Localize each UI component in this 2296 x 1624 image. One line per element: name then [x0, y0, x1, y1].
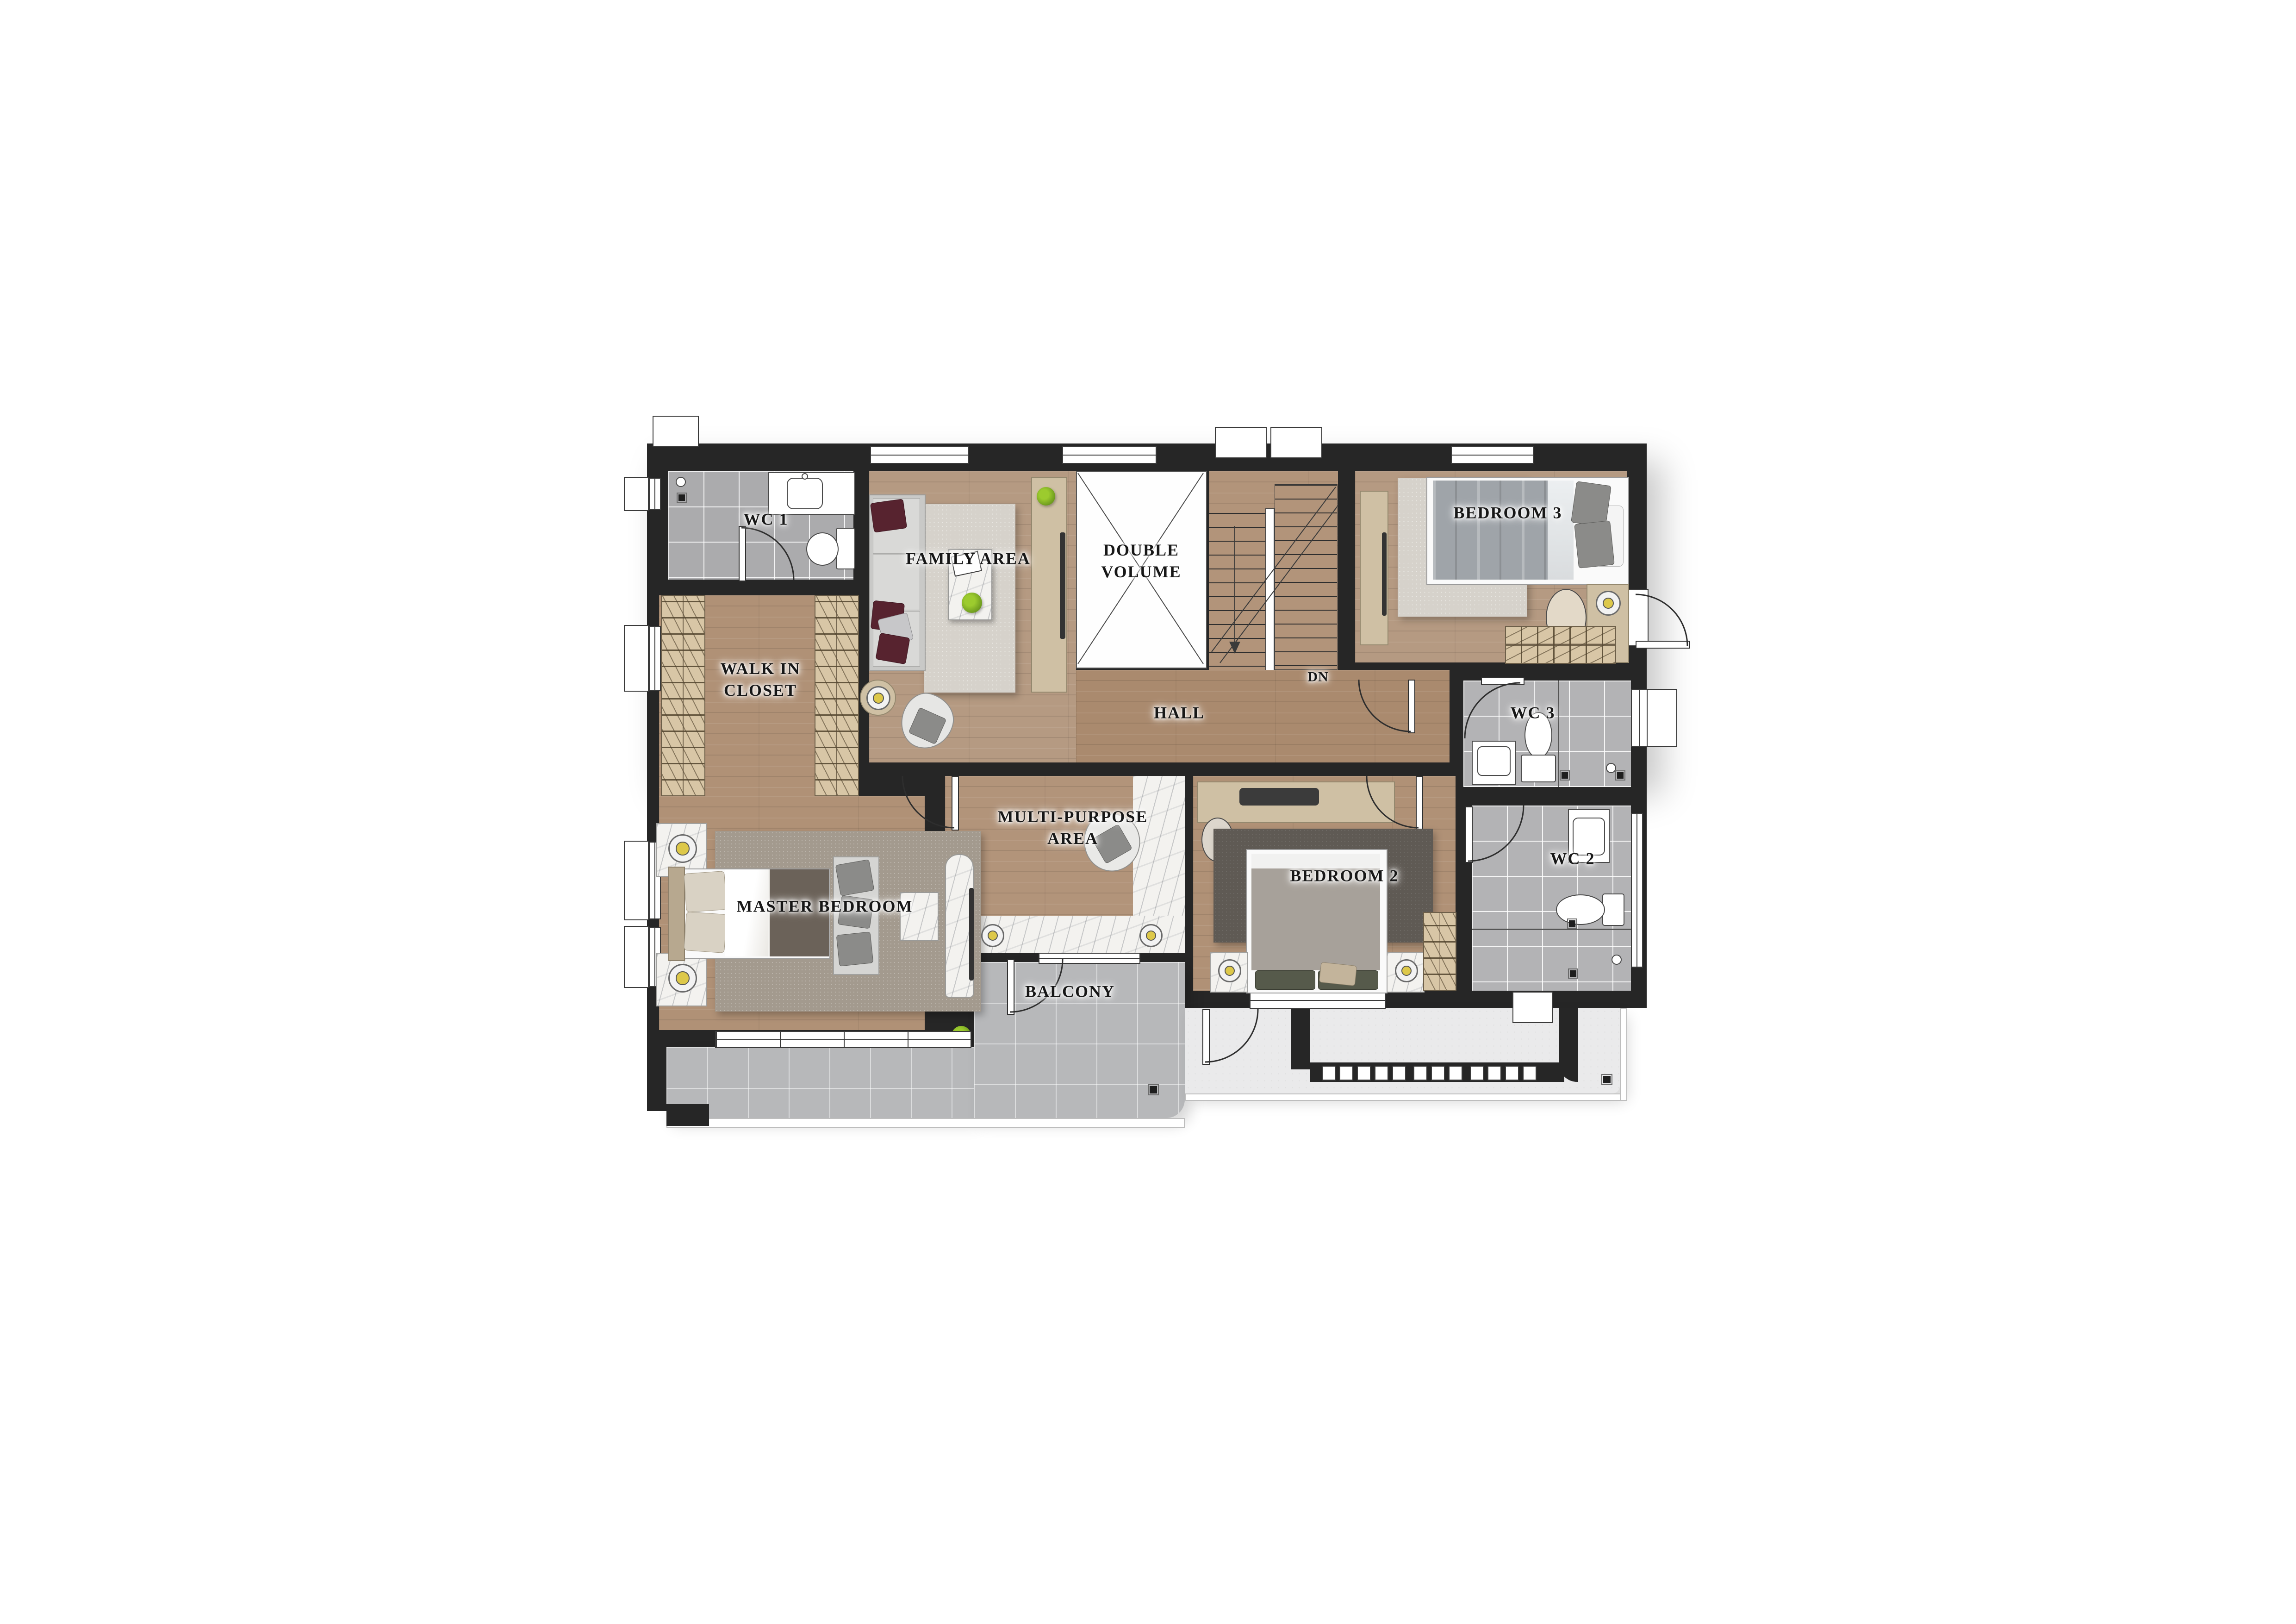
room-hall-floor [1076, 670, 1450, 762]
floor-drain [1570, 970, 1576, 977]
room-label-wc3: WC 3 [1511, 702, 1556, 724]
terrace-bottom-edge [1185, 1093, 1627, 1101]
room-label-bedroom3: BEDROOM 3 [1453, 502, 1562, 524]
floor-drain [1562, 772, 1568, 779]
room-label-wc2: WC 2 [1550, 848, 1595, 870]
window-north-bedroom3 [1451, 446, 1534, 464]
toilet-tank [1521, 755, 1556, 782]
sink-basin [787, 478, 823, 509]
stair-divider-rail [1265, 508, 1275, 672]
bed-pillow [684, 871, 727, 912]
door-leaf-wc1 [739, 526, 746, 581]
terrace-right-edge [1620, 1008, 1627, 1101]
railing-slot [1357, 1066, 1371, 1081]
bedside-lamp [1218, 959, 1241, 982]
window-north-double-volume [1062, 446, 1157, 464]
room-label-wc1: WC 1 [744, 509, 789, 531]
wardrobe-west [661, 595, 705, 796]
recessed-light [981, 924, 1004, 947]
wardrobe-east [815, 595, 859, 796]
door-leaf-balcony [1007, 959, 1014, 1015]
room-label-line: WALK IN [720, 659, 800, 678]
floor-drain [678, 494, 685, 501]
wardrobe-bedroom3 [1505, 626, 1616, 664]
bedside-lamp [1395, 959, 1418, 982]
railing-slot [1322, 1066, 1336, 1081]
window-west-wc1 [649, 478, 661, 510]
room-label-line: AREA [1047, 829, 1098, 848]
room-label-balcony: BALCONY [1025, 981, 1115, 1003]
throw-pillow [875, 633, 910, 665]
faucet [802, 473, 808, 480]
door-leaf-master-bedroom [952, 776, 959, 831]
railing-slot [1505, 1066, 1519, 1081]
railing-slot [1339, 1066, 1353, 1081]
roof-protrusion [653, 416, 699, 447]
floor-plan-canvas: WC 1 FAMILY AREA DOUBLE VOLUME BEDROOM 3… [0, 0, 2296, 1624]
room-label-walk-in-closet: WALK IN CLOSET [720, 658, 800, 701]
window-sill-east-wc3 [1647, 689, 1677, 747]
laptop [1239, 788, 1319, 806]
window-east-wc3 [1631, 689, 1649, 747]
balcony-step [666, 1104, 709, 1126]
door-leaf-wc2 [1465, 806, 1473, 863]
room-label-multi-purpose: MULTI-PURPOSE AREA [998, 806, 1148, 849]
bed-pillow [1255, 970, 1315, 990]
room-label-line: MULTI-PURPOSE [998, 807, 1148, 826]
bench-pillow [835, 859, 875, 896]
shower-head [1612, 955, 1622, 965]
floor-drain [1569, 920, 1575, 927]
bed-pillow [1574, 520, 1615, 568]
stair-flight-right [1275, 484, 1338, 670]
door-leaf-wc3 [1481, 677, 1524, 685]
window-sill-north [1215, 427, 1267, 458]
room-label-double-volume: DOUBLE VOLUME [1101, 539, 1181, 583]
window-sill-west [624, 477, 649, 511]
bed-pillow [684, 912, 727, 953]
railing-slot [1431, 1066, 1445, 1081]
toilet-bowl [806, 532, 839, 566]
door-leaf-bedroom3 [1408, 680, 1415, 733]
shower-divider [1472, 929, 1631, 930]
railing-slot [1392, 1066, 1406, 1081]
window-north-family [870, 446, 969, 464]
bedroom3-duvet [1433, 481, 1549, 580]
railing-slot [1449, 1066, 1462, 1081]
door-leaf-bedroom3-exterior [1636, 641, 1690, 649]
parapet-corner [1559, 1008, 1578, 1082]
railing-slot [1470, 1066, 1484, 1081]
table-lamp [866, 686, 890, 710]
window-sill-west [624, 625, 649, 692]
bedside-lamp [668, 834, 697, 863]
window-sill-west [624, 841, 649, 920]
room-label-bedroom2: BEDROOM 2 [1290, 865, 1399, 887]
window-south-multi [1039, 953, 1140, 964]
accent-pillow [1319, 962, 1357, 986]
railing-slot [1487, 1066, 1501, 1081]
bedside-lamp [1596, 591, 1621, 616]
throw-pillow [870, 499, 907, 532]
railing-slot [1375, 1066, 1388, 1081]
floor-drain [1150, 1086, 1157, 1093]
bench-pillow [836, 931, 874, 966]
window-sill-west [624, 926, 649, 988]
room-label-hall: HALL [1154, 702, 1205, 724]
bed-pillow [1571, 481, 1612, 527]
table-plant [962, 593, 982, 613]
window-box-south-wc2 [1512, 992, 1553, 1023]
room-label-line: DOUBLE [1103, 541, 1179, 559]
shower-head [676, 477, 686, 487]
door-leaf-bedroom2-terrace [1202, 1009, 1210, 1065]
door-sill-east-bedroom3 [1627, 589, 1649, 646]
room-label-line: VOLUME [1101, 562, 1181, 581]
railing-slot [1523, 1066, 1537, 1081]
window-west-closet [649, 626, 661, 691]
railing-slot [1413, 1066, 1427, 1081]
floor-drain [1617, 772, 1624, 779]
bedside-lamp [668, 964, 697, 993]
pillar-tv-screen [969, 888, 974, 981]
door-leaf-bedroom2 [1416, 776, 1423, 831]
room-label-master-bedroom: MASTER BEDROOM [736, 896, 913, 918]
stair-flight-left [1209, 513, 1265, 670]
console-plant [1037, 487, 1055, 506]
toilet-tank [836, 528, 855, 569]
balcony-outer-edge [666, 1118, 1185, 1128]
recessed-light [1139, 924, 1163, 947]
bed-sheet [1548, 481, 1574, 580]
room-label-family-area: FAMILY AREA [906, 548, 1031, 570]
shower-head [1606, 763, 1616, 773]
headboard [668, 867, 685, 961]
window-south-bedroom2 [1250, 992, 1386, 1009]
tv-screen [1382, 532, 1387, 616]
window-east-wc2 [1631, 813, 1643, 968]
wardrobe-bedroom2 [1423, 912, 1456, 991]
shower-divider [1558, 681, 1559, 787]
floor-drain [1603, 1076, 1611, 1083]
toilet-bowl [1556, 894, 1605, 925]
sink-basin [1477, 746, 1511, 776]
balcony-west-wall [647, 1047, 666, 1111]
window-south-master [715, 1031, 971, 1048]
window-sill-north [1270, 427, 1322, 458]
parapet-stub-wall [1291, 1008, 1310, 1069]
tv-screen [1060, 532, 1065, 639]
room-label-line: CLOSET [724, 681, 797, 700]
balcony-floor-west [666, 1047, 974, 1118]
toilet-tank [1602, 893, 1624, 926]
stair-label-dn: DN [1307, 668, 1328, 686]
